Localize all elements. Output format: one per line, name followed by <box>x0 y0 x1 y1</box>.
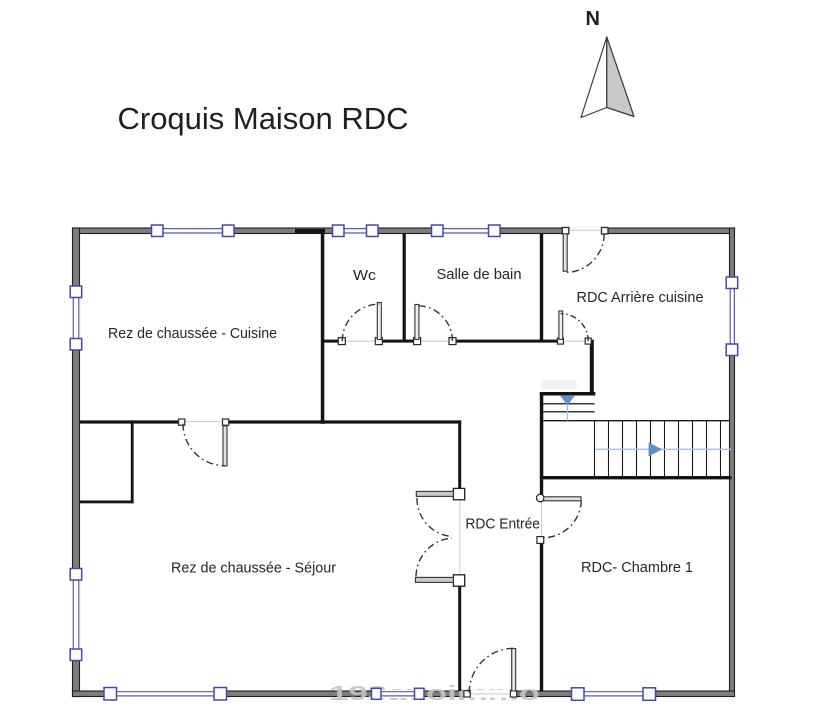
svg-text:Wc: Wc <box>353 268 376 284</box>
svg-text:Salle de bain: Salle de bain <box>437 267 522 283</box>
svg-text:RDC Entrée: RDC Entrée <box>465 517 540 533</box>
svg-text:N: N <box>586 8 600 30</box>
svg-text:RDC Arrière cuisine: RDC Arrière cuisine <box>577 290 704 306</box>
svg-text:Croquis Maison RDC: Croquis Maison RDC <box>118 101 409 136</box>
svg-text:Rez de chaussée - Séjour: Rez de chaussée - Séjour <box>171 561 336 577</box>
svg-text:Rez de chaussée - Cuisine: Rez de chaussée - Cuisine <box>108 326 277 342</box>
svg-text:RDC- Chambre 1: RDC- Chambre 1 <box>581 560 693 576</box>
